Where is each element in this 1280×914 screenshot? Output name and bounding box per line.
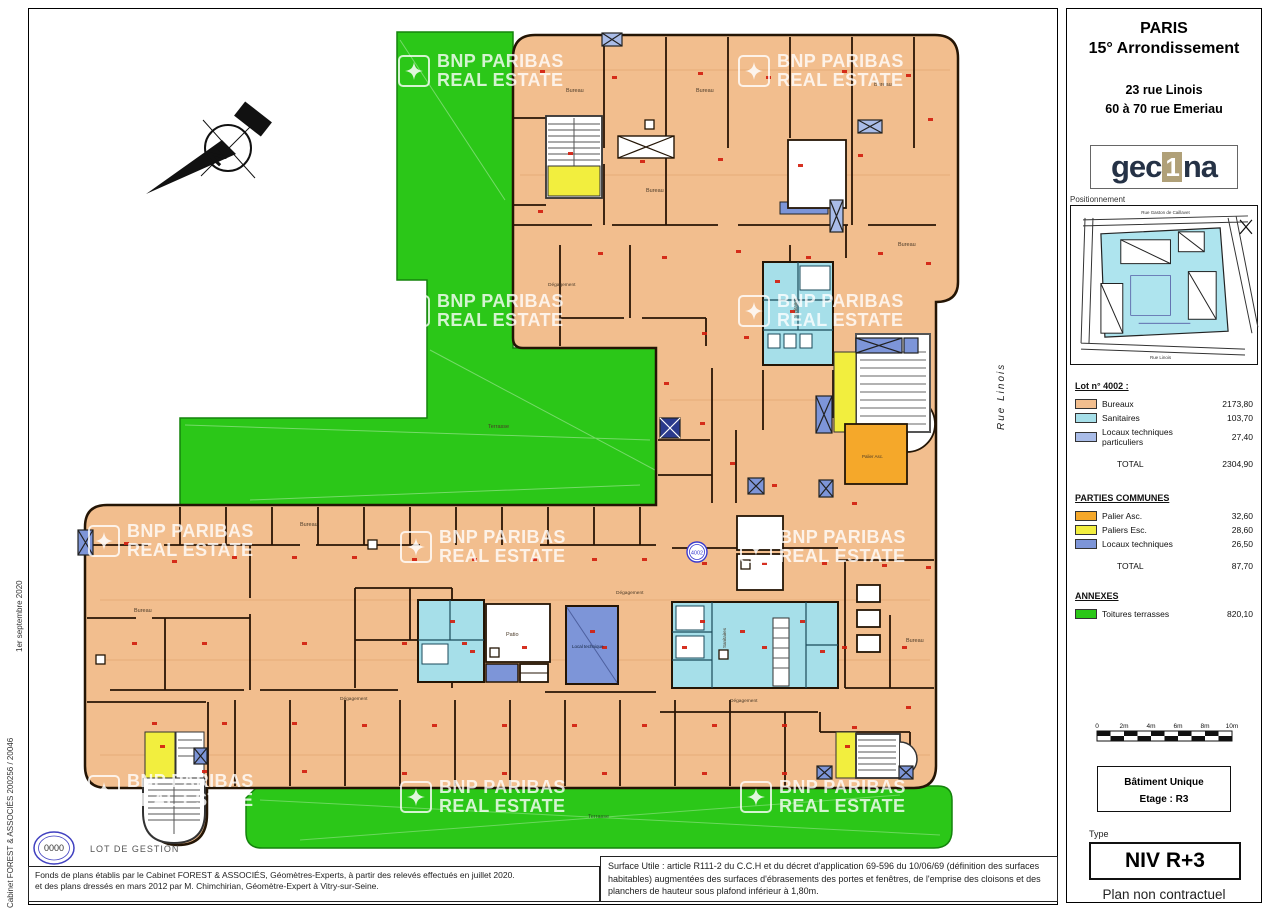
svg-text:8m: 8m (1200, 723, 1209, 730)
patio-label: Patio (506, 632, 519, 638)
svg-text:4m: 4m (1146, 723, 1155, 730)
gecina-logo: gec1na (1090, 145, 1238, 189)
disclaimer: Plan non contractuel (1067, 887, 1261, 902)
legend-lot-total: TOTAL2304,90 (1075, 459, 1253, 469)
svg-text:10m: 10m (1226, 723, 1239, 730)
swatch-locaux-tech (1075, 539, 1097, 549)
svg-text:Rue Linois: Rue Linois (1150, 355, 1172, 360)
positionnement-label: Positionnement (1070, 195, 1261, 204)
location-map: Rue Gaston de Caillavet Rue Linois (1070, 205, 1258, 365)
svg-text:2m: 2m (1119, 723, 1128, 730)
legend-lot-title: Lot n° 4002 : (1075, 381, 1253, 391)
legend-row-paliers-esc: Paliers Esc.28,60 (1075, 525, 1253, 535)
swatch-sanitaires (1075, 413, 1097, 423)
title-block-panel: PARIS 15° Arrondissement 23 rue Linois 6… (1066, 8, 1262, 903)
surface-utile-note: Surface Utile : article R111-2 du C.C.H … (600, 856, 1058, 902)
terrace-label: Terrasse (488, 424, 509, 430)
scale-bar: 0 2m 4m 6m 8m 10m (1089, 721, 1249, 751)
margin-cabinet: Cabinet FOREST & ASSOCIÉS 200256 / 20046 (6, 738, 15, 908)
svg-text:4002: 4002 (691, 551, 703, 557)
svg-text:Bureau: Bureau (696, 88, 714, 94)
north-compass-icon: N (146, 101, 272, 194)
margin-date: 1er septembre 2020 (15, 580, 24, 652)
legend-annexes-title: ANNEXES (1075, 591, 1253, 601)
svg-text:Dégagement: Dégagement (548, 282, 576, 288)
legend-row-toitures: Toitures terrasses820,10 (1075, 609, 1253, 619)
sheet-title: PARIS 15° Arrondissement (1067, 19, 1261, 59)
stair-upper-left (546, 116, 602, 198)
svg-text:Dégagement: Dégagement (730, 698, 758, 704)
svg-text:Bureau: Bureau (300, 522, 318, 528)
legend-row-sanitaires: Sanitaires103,70 (1075, 413, 1253, 423)
legend-row-palier-asc: Palier Asc.32,60 (1075, 511, 1253, 521)
swatch-locaux-part (1075, 432, 1097, 442)
svg-text:0: 0 (1095, 723, 1099, 730)
legend-row-locaux-tech: Locaux techniques26,50 (1075, 539, 1253, 549)
legend-communes-title: PARTIES COMMUNES (1075, 493, 1253, 503)
lot-badge: 4002 (687, 542, 707, 562)
svg-text:Bureau: Bureau (898, 242, 916, 248)
svg-text:Dégagement: Dégagement (616, 590, 644, 596)
svg-text:Dégagement: Dégagement (340, 696, 368, 702)
svg-text:Bureau: Bureau (906, 638, 924, 644)
svg-text:Sanitaires: Sanitaires (722, 627, 727, 648)
swatch-paliers-esc (1075, 525, 1097, 535)
legend: Lot n° 4002 : Bureaux2173,80 Sanitaires1… (1067, 381, 1261, 619)
terrace-label-2: Terrasse (588, 814, 609, 820)
svg-text:Bureau: Bureau (874, 82, 892, 88)
surveyor-note: Fonds de plans établis par le Cabinet FO… (28, 866, 600, 902)
legend-row-bureaux: Bureaux2173,80 (1075, 399, 1253, 409)
svg-text:Bureau: Bureau (566, 88, 584, 94)
legend-communes-total: TOTAL87,70 (1075, 561, 1253, 571)
svg-text:0000: 0000 (44, 843, 64, 853)
svg-text:Bureau: Bureau (646, 188, 664, 194)
svg-text:6m: 6m (1173, 723, 1182, 730)
plan-sheet: Terrasse Terrasse Patio Palier Asc. Bure… (0, 0, 1280, 914)
type-label: Type (1089, 829, 1109, 839)
palier-asc-label: Palier Asc. (862, 454, 883, 459)
street-label: Rue Linois (996, 363, 1007, 430)
svg-text:Rue Gaston de Caillavet: Rue Gaston de Caillavet (1141, 209, 1190, 214)
svg-text:N: N (203, 140, 235, 171)
svg-text:Bureau: Bureau (134, 608, 152, 614)
swatch-bureaux (1075, 399, 1097, 409)
svg-text:Sanitaires: Sanitaires (793, 297, 798, 318)
level-box: NIV R+3 (1089, 842, 1241, 880)
lot-gestion-label: LOT DE GESTION (90, 844, 179, 854)
site-address: 23 rue Linois 60 à 70 rue Emeriau (1067, 81, 1261, 119)
legend-row-locaux-part: Locaux techniques particuliers27,40 (1075, 427, 1253, 447)
building-etage-box: Bâtiment Unique Etage : R3 (1097, 766, 1231, 812)
swatch-palier-asc (1075, 511, 1097, 521)
local-technique-label: Local technique (572, 644, 604, 649)
swatch-toitures (1075, 609, 1097, 619)
